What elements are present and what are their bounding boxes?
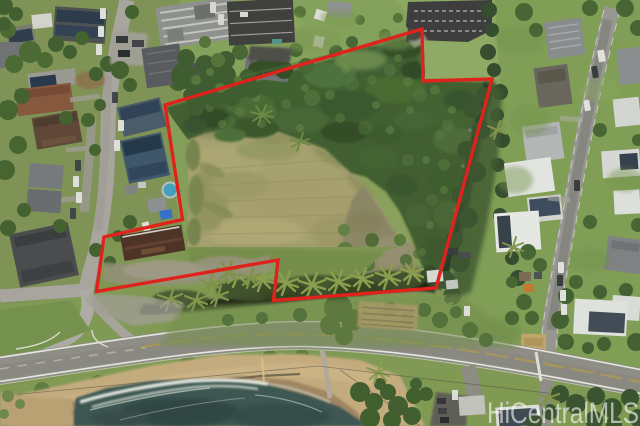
svg-text:HiCentralMLS: HiCentralMLS — [487, 397, 639, 426]
